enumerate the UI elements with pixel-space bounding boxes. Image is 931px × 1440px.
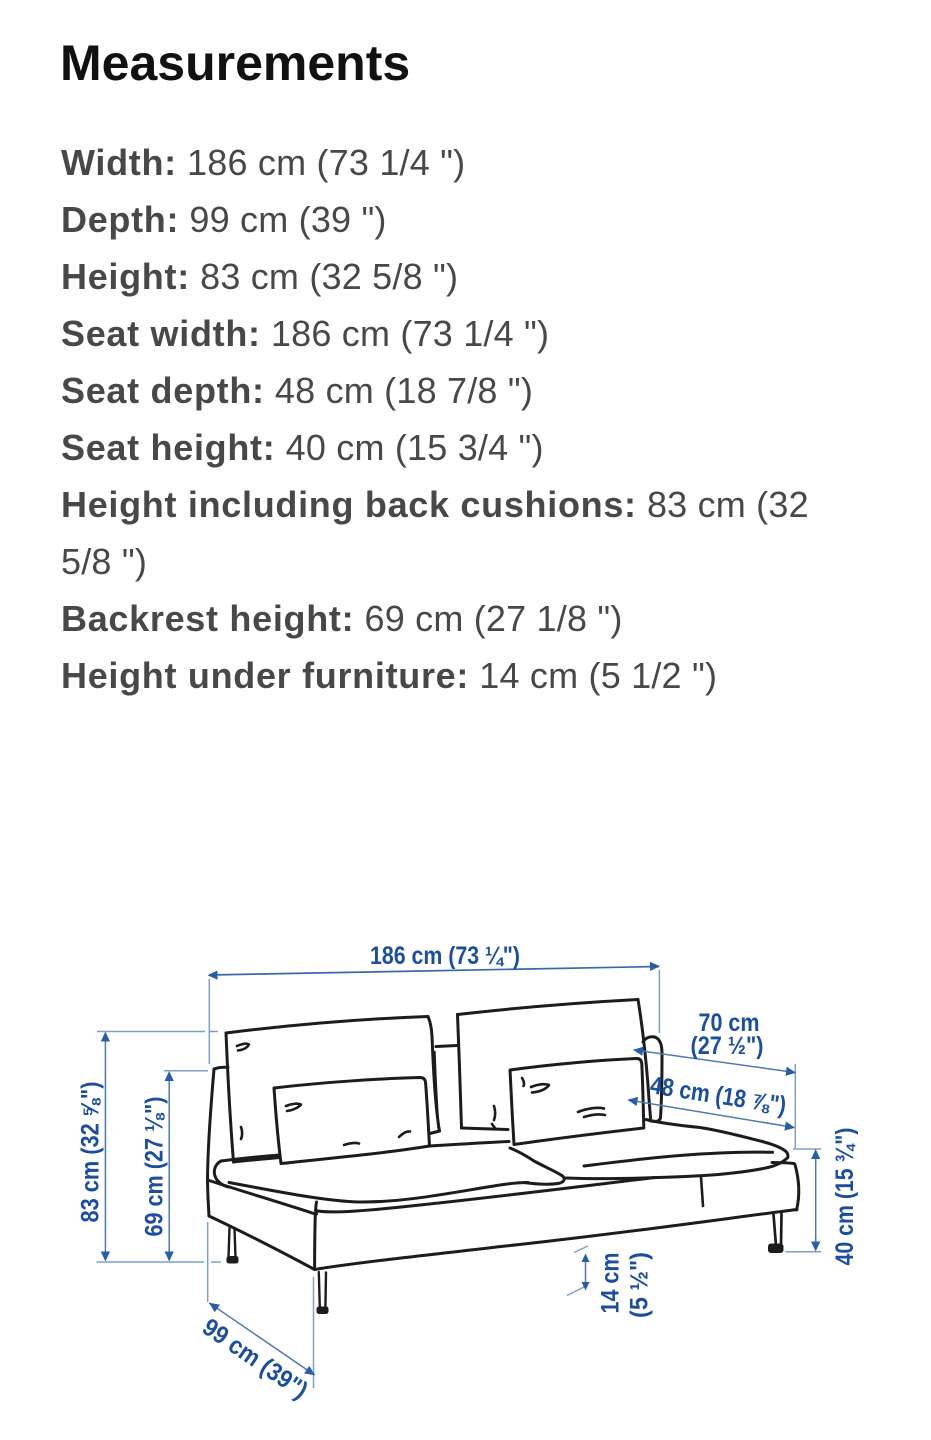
svg-text:(5 ½"): (5 ½") <box>626 1252 654 1318</box>
svg-text:99 cm (39"): 99 cm (39") <box>197 1313 313 1405</box>
svg-text:83 cm (32 ⅝"): 83 cm (32 ⅝") <box>77 1082 105 1223</box>
svg-text:69 cm (27 ⅛"): 69 cm (27 ⅛") <box>141 1097 169 1237</box>
svg-text:186 cm (73 ¼"): 186 cm (73 ¼") <box>370 942 520 970</box>
svg-text:48 cm (18 ⅞"): 48 cm (18 ⅞") <box>648 1071 788 1120</box>
svg-text:14 cm: 14 cm <box>597 1253 625 1314</box>
svg-text:40 cm (15 ¾"): 40 cm (15 ¾") <box>831 1128 859 1266</box>
svg-text:(27 ½"): (27 ½") <box>691 1032 764 1060</box>
